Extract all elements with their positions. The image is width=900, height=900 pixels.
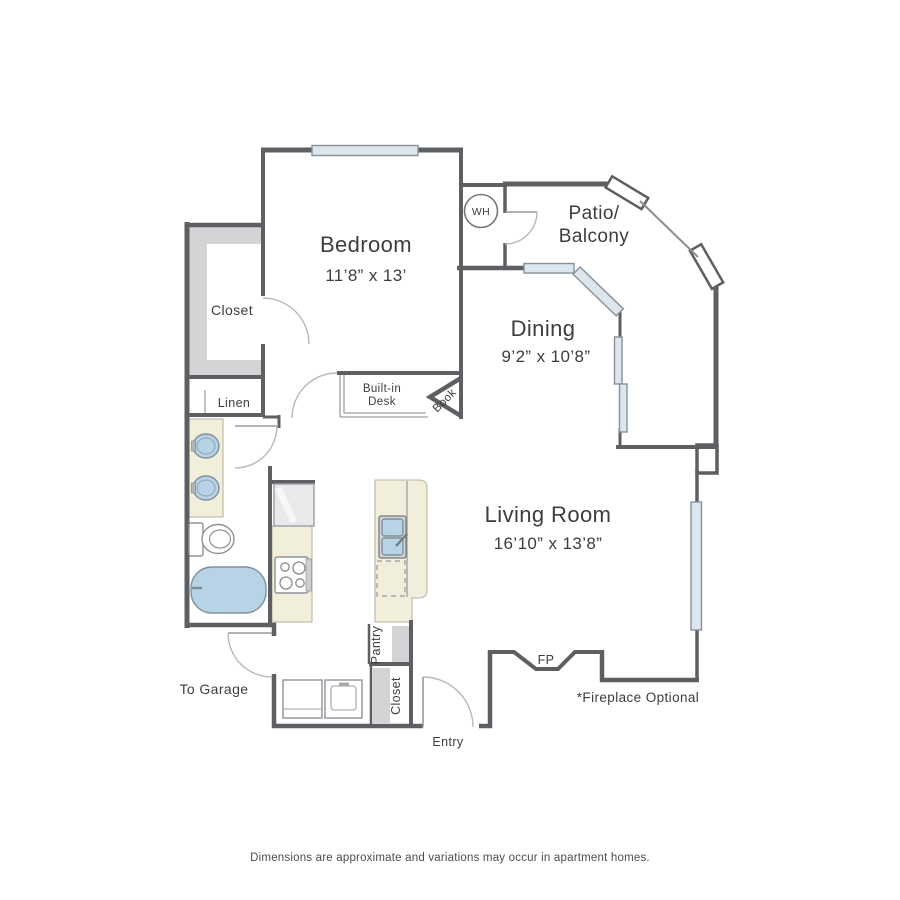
entry-closet-shelf-band	[373, 668, 390, 723]
disclaimer-text: Dimensions are approximate and variation…	[250, 852, 650, 864]
patio-corner-post-lower	[690, 244, 723, 289]
dryer-control-icon	[339, 683, 349, 687]
vanity-faucet-2-icon	[192, 483, 196, 493]
to-garage-label: To Garage	[180, 681, 249, 697]
dining-label: Dining	[511, 316, 576, 341]
window-dining-east-2	[620, 384, 628, 432]
window-bedroom	[312, 146, 418, 156]
door-arc-wh	[505, 212, 537, 244]
fireplace-label: FP	[538, 653, 555, 667]
pantry-label: Pantry	[369, 625, 383, 664]
window-living-east	[691, 502, 702, 630]
floorplan-page: Bedroom 11’8” x 13’ Dining 9’2” x 10’8” …	[0, 0, 900, 900]
living-room-dims: 16’10” x 13’8”	[494, 534, 603, 553]
patio-label-line1: Patio/	[569, 203, 620, 224]
pantry-shelf-band	[392, 626, 410, 662]
entry-closet-label: Closet	[389, 677, 403, 715]
door-arc-bathroom	[235, 426, 277, 468]
stove-front-edge	[306, 559, 312, 591]
bedroom-label: Bedroom	[320, 232, 412, 257]
dryer-door-icon	[331, 686, 356, 710]
patio-label-line2: Balcony	[559, 226, 629, 247]
door-arc-entry	[423, 677, 473, 727]
desk-label-line1: Built-in	[363, 383, 401, 395]
desk-label-line2: Desk	[368, 396, 396, 408]
wall-column-notch	[697, 445, 717, 473]
vanity-faucet-1-icon	[192, 441, 196, 451]
walkin-closet-label: Closet	[211, 302, 253, 318]
walls	[187, 148, 723, 728]
toilet-tank-icon	[189, 523, 203, 556]
bathtub-icon	[191, 567, 266, 613]
door-arc-bedroom	[292, 373, 337, 418]
entry-label: Entry	[432, 735, 464, 749]
window-dining-north	[524, 264, 574, 274]
fireplace-note: *Fireplace Optional	[577, 690, 699, 705]
washer-icon	[283, 680, 322, 718]
window-dining-diagonal	[573, 267, 623, 316]
water-heater-label: WH	[472, 206, 490, 218]
door-arc-walkin-closet	[263, 298, 309, 344]
stove-icon	[275, 557, 308, 593]
linen-label: Linen	[218, 396, 251, 410]
floorplan-drawing: Bedroom 11’8” x 13’ Dining 9’2” x 10’8” …	[0, 0, 900, 900]
island-sink-basin-1	[382, 519, 403, 536]
living-room-label: Living Room	[485, 502, 612, 527]
dining-dims: 9’2” x 10’8”	[502, 347, 591, 366]
patio-railing	[640, 201, 698, 257]
door-arc-garage	[228, 633, 272, 677]
toilet-bowl-icon	[202, 525, 234, 554]
bedroom-dims: 11’8” x 13’	[325, 266, 407, 285]
window-dining-east-1	[615, 337, 623, 384]
